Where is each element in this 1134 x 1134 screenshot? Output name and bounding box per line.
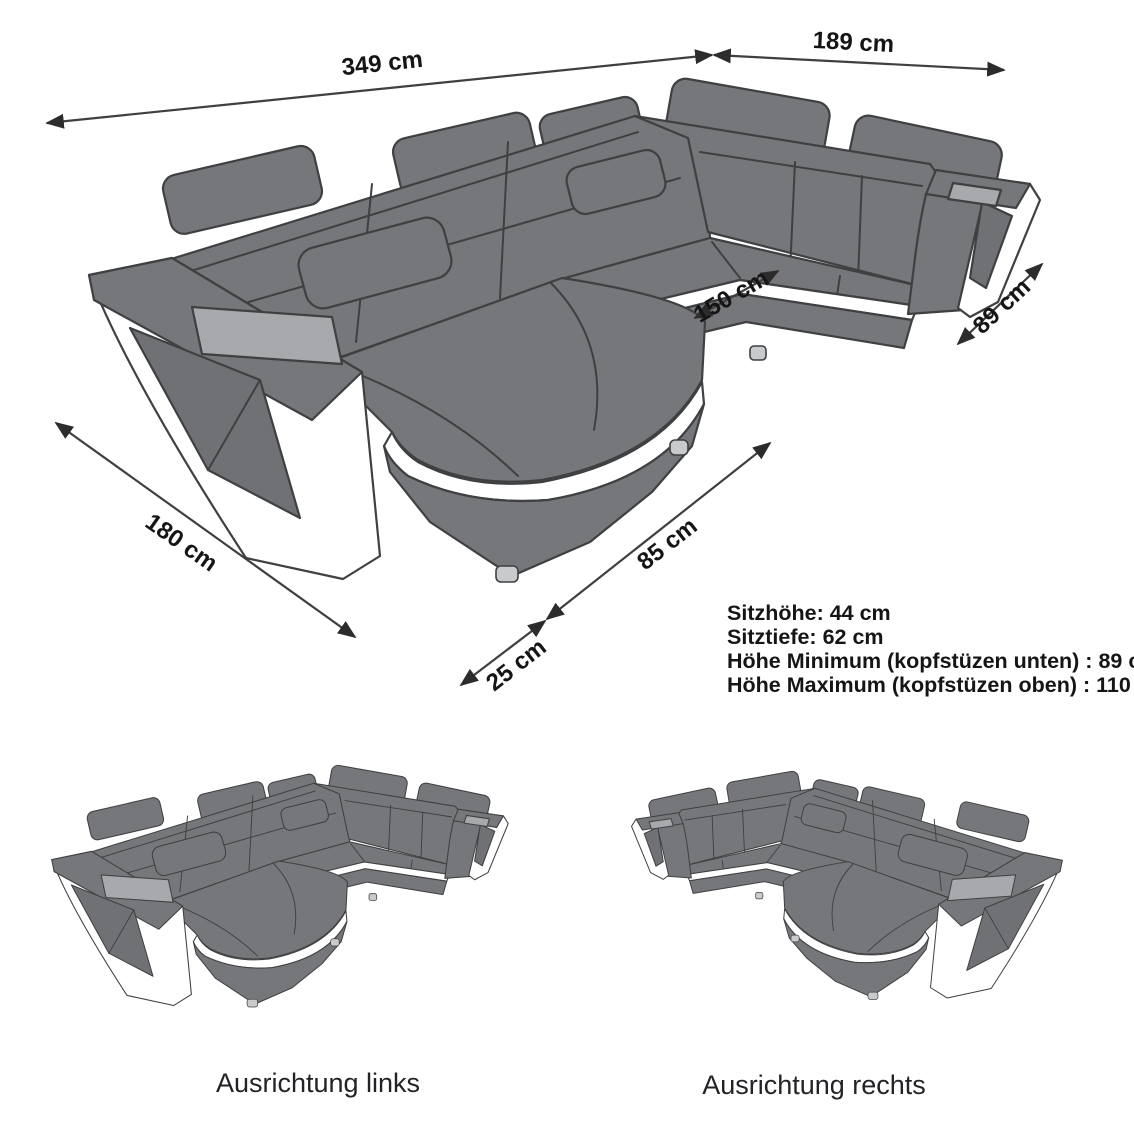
product-dimension-sheet: 349 cm 189 cm 150 cm 89 cm 180 cm 25 cm … xyxy=(0,0,1134,1134)
dimension-label-right-depth: 189 cm xyxy=(812,27,895,58)
dimension-line-189 xyxy=(714,55,1004,70)
spec-seat-depth: Sitztiefe: 62 cm xyxy=(727,625,1134,649)
spec-seat-height: Sitzhöhe: 44 cm xyxy=(727,601,1134,625)
dimension-diagram: 349 cm 189 cm 150 cm 89 cm 180 cm 25 cm … xyxy=(0,0,1134,1134)
specs-block: Sitzhöhe: 44 cm Sitztiefe: 62 cm Höhe Mi… xyxy=(727,601,1134,697)
spec-height-min: Höhe Minimum (kopfstüzen unten) : 89 cm xyxy=(727,649,1134,673)
spec-height-max: Höhe Maximum (kopfstüzen oben) : 110 cm xyxy=(727,673,1134,697)
dimension-label-total-width: 349 cm xyxy=(340,46,424,81)
sofa-main-drawing xyxy=(89,77,1040,582)
variant-caption-right: Ausrichtung rechts xyxy=(604,1070,1024,1101)
variant-caption-left: Ausrichtung links xyxy=(108,1068,528,1099)
sofa-variant-left-drawing xyxy=(52,764,508,1007)
sofa-variant-right-drawing xyxy=(632,770,1063,999)
dimension-label-left-depth: 180 cm xyxy=(140,508,222,577)
